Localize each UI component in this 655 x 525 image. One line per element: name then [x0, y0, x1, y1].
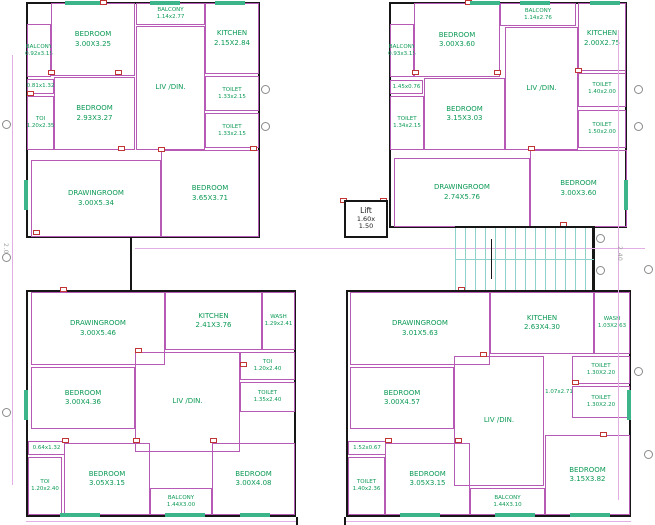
room-bedroom: BEDROOM3.05X3.15 — [64, 443, 150, 515]
room-dims-label: 3.00X3.60 — [561, 189, 597, 198]
room-dims-label: 3.65X3.71 — [192, 194, 228, 203]
room-dims-label: 1.40x2.36 — [353, 486, 381, 493]
stair-rail — [491, 239, 492, 279]
room-toilet: TOILET1.30X2.20 — [572, 386, 630, 418]
window-marker-icon — [24, 180, 28, 210]
window-marker-icon — [520, 1, 550, 5]
room-dims-label: 3.00X3.60 — [439, 40, 475, 49]
room-name-label: KITCHEN — [198, 312, 228, 321]
room-name-label: DRAWINGROOM — [434, 183, 490, 192]
door-marker-icon — [158, 147, 165, 152]
room-bedroom: BEDROOM3.15X3.03 — [424, 78, 505, 150]
grid-bubble-icon — [2, 253, 11, 262]
door-marker-icon — [62, 438, 69, 443]
room-dims-label: 1.44X3.00 — [167, 502, 195, 509]
room-dims-label: 1.50x2.00 — [588, 129, 616, 136]
staircase — [455, 226, 594, 292]
wall-segment — [296, 517, 298, 525]
dimension-line — [346, 521, 631, 522]
door-marker-icon — [48, 70, 55, 75]
door-marker-icon — [528, 146, 535, 151]
room-bedroom: BEDROOM3.00X3.25 — [51, 3, 135, 76]
room-name-label: BEDROOM — [384, 389, 421, 398]
room-toilet: TOILET1.35x2.40 — [240, 382, 295, 412]
room-dims-label: 1.52x0.67 — [353, 445, 381, 452]
room-name-label: LIV /DIN. — [484, 416, 514, 425]
grid-bubble-icon — [261, 85, 270, 94]
door-marker-icon — [118, 146, 125, 151]
room-dims-label: 3.05X3.15 — [410, 479, 446, 488]
room-name-label: TOILET — [591, 363, 610, 370]
room-liv-din: LIV /DIN. — [505, 27, 578, 150]
room-toilet: TOILET1.40x2.36 — [348, 457, 385, 515]
window-marker-icon — [240, 513, 270, 517]
window-marker-icon — [624, 180, 628, 210]
window-marker-icon — [60, 513, 100, 517]
door-marker-icon — [250, 146, 257, 151]
room-name-label: BEDROOM — [569, 466, 606, 475]
room-balcony: BALCONY1.14x2.77 — [136, 3, 205, 25]
room-dims-label: 3.05X3.15 — [89, 479, 125, 488]
room-bedroom: BEDROOM3.00X3.60 — [530, 150, 627, 227]
room-name-label: BALCONY — [168, 495, 194, 502]
room-name-label: TOILET — [397, 116, 416, 123]
door-marker-icon — [240, 362, 247, 367]
room-dims-label: 1.33x2.15 — [218, 94, 246, 101]
room-dims-label: 1.20x2.40 — [31, 486, 59, 493]
room-toi: TOI1.20x2.35 — [27, 96, 54, 150]
room-name-label: DRAWINGROOM — [68, 189, 124, 198]
room-toi: TOI1.20x2.40 — [240, 352, 295, 380]
room-toilet: TOILET1.34x2.15 — [390, 96, 424, 150]
floorplan-canvas: BALCONY0.92x3.15BEDROOM3.00X3.25BALCONY1… — [0, 0, 655, 525]
wall-segment — [130, 238, 132, 290]
door-marker-icon — [412, 70, 419, 75]
room-dims-label: 1.30X2.20 — [587, 402, 615, 409]
room-name-label: KITCHEN — [217, 29, 247, 38]
room-dims-label: 1.20x2.40 — [254, 366, 282, 373]
room-name-label: TOI — [40, 479, 49, 486]
room-dims-label: 2.41X3.76 — [196, 321, 232, 330]
room-name-label: BALCONY — [525, 8, 551, 15]
room-name-label: BEDROOM — [439, 31, 476, 40]
room-name-label: KITCHEN — [527, 314, 557, 323]
room-dims-label: 1.34x2.15 — [393, 123, 421, 130]
grid-bubble-icon — [634, 85, 643, 94]
room-dims-label: 3.00X3.25 — [75, 40, 111, 49]
room-name-label: TOILET — [592, 122, 611, 129]
room-dims-label: 0.64x1.32 — [33, 445, 61, 452]
room-bedroom: BEDROOM3.00X4.57 — [350, 367, 454, 429]
room-name-label: BEDROOM — [89, 470, 126, 479]
room-name-label: DRAWINGROOM — [70, 319, 126, 328]
room-dims-label: 3.00X4.08 — [236, 479, 272, 488]
grid-bubble-icon — [596, 234, 605, 243]
room-dims-label: 1.14x2.77 — [157, 14, 185, 21]
door-marker-icon — [100, 0, 107, 5]
door-marker-icon — [572, 380, 579, 385]
room-toilet: TOILET1.33x2.15 — [205, 113, 259, 148]
door-marker-icon — [210, 438, 217, 443]
lift-shaft: Lift 1.60x 1.50 — [344, 200, 388, 238]
room-dims-label: 1.14x2.76 — [524, 15, 552, 22]
room-name-label: TOI — [36, 116, 45, 123]
room-kitchen: KITCHEN2.41X3.76 — [165, 292, 262, 350]
room-drawingroom: DRAWINGROOM2.74X5.76 — [394, 158, 530, 227]
room-name-label: BEDROOM — [446, 105, 483, 114]
room-bedroom: BEDROOM3.00X3.60 — [414, 3, 500, 77]
room-dims-label: 2.74X5.76 — [444, 193, 480, 202]
window-marker-icon — [165, 513, 205, 517]
room-dims-label: 3.15X3.03 — [447, 114, 483, 123]
room-name-label: BEDROOM — [75, 30, 112, 39]
lift-dim-2: 1.50 — [359, 223, 373, 230]
room-name-label: BEDROOM — [560, 179, 597, 188]
dimension-line — [26, 521, 296, 522]
grid-bubble-icon — [644, 265, 653, 274]
window-marker-icon — [65, 1, 100, 5]
room-bedroom: BEDROOM3.65X3.71 — [161, 150, 259, 237]
room-name-label: BEDROOM — [76, 104, 113, 113]
room-balcony: BALCONY1.44X3.00 — [150, 488, 212, 515]
window-marker-icon — [495, 513, 535, 517]
room-bedroom: BEDROOM3.00X4.36 — [31, 367, 135, 429]
grid-bubble-icon — [596, 266, 605, 275]
dimension-line — [12, 55, 13, 485]
room-dims-label: 2.63X4.30 — [524, 323, 560, 332]
room-name-label: BALCONY — [26, 44, 52, 51]
room-wash: WASH1.03X2.63 — [594, 292, 630, 354]
dimension-text: 2.40 — [616, 246, 623, 261]
room-kitchen: KITCHEN2.15X2.84 — [205, 3, 259, 74]
room-name-label: BEDROOM — [235, 470, 272, 479]
room-balcony: BALCONY1.44X3.10 — [470, 488, 545, 515]
window-marker-icon — [24, 390, 28, 420]
room-name-label: TOILET — [591, 395, 610, 402]
door-marker-icon — [27, 91, 34, 96]
door-marker-icon — [575, 68, 582, 73]
grid-bubble-icon — [634, 122, 643, 131]
room-drawingroom: DRAWINGROOM3.01X5.63 — [350, 292, 490, 365]
room-toi: TOI1.20x2.40 — [28, 457, 62, 515]
door-marker-icon — [133, 438, 140, 443]
room-name-label: BEDROOM — [409, 470, 446, 479]
room-name-label: TOILET — [258, 390, 277, 397]
room-balcony: BALCONY0.93x3.15 — [390, 24, 414, 77]
stair-landing-line — [455, 259, 594, 260]
room-passage: 0.64x1.32 — [28, 441, 65, 455]
door-marker-icon — [385, 438, 392, 443]
room-bedroom: BEDROOM3.00X4.08 — [212, 443, 295, 515]
room-dims-label: 3.00X5.46 — [80, 329, 116, 338]
room-dims-label: 1.44X3.10 — [493, 502, 521, 509]
room-name-label: BEDROOM — [65, 389, 102, 398]
room-dims-label: 1.45x0.76 — [393, 84, 421, 91]
window-marker-icon — [400, 513, 440, 517]
room-balcony: BALCONY1.14x2.76 — [500, 3, 576, 26]
door-marker-icon — [33, 230, 40, 235]
room-name-label: BALCONY — [494, 495, 520, 502]
door-marker-icon — [135, 348, 142, 353]
room-dims-label: 2.00X2.75 — [584, 39, 620, 48]
room-bedroom: BEDROOM3.05X3.15 — [385, 443, 470, 515]
room-dims-label: 0.93x3.15 — [388, 51, 416, 58]
room-passage: 1.45x0.76 — [390, 80, 423, 94]
room-dims-label: 2.15X2.84 — [214, 39, 250, 48]
room-name-label: TOILET — [592, 82, 611, 89]
grid-bubble-icon — [644, 450, 653, 459]
room-passage: 1.52x0.67 — [348, 441, 386, 455]
room-name-label: BALCONY — [157, 7, 183, 14]
window-marker-icon — [470, 1, 500, 5]
door-marker-icon — [115, 70, 122, 75]
door-marker-icon — [455, 438, 462, 443]
window-marker-icon — [150, 1, 180, 5]
room-name-label: KITCHEN — [587, 29, 617, 38]
room-dims-label: 1.03X2.63 — [598, 323, 626, 330]
grid-bubble-icon — [2, 408, 11, 417]
room-toilet: TOILET1.33x2.15 — [205, 76, 259, 111]
room-bedroom: BEDROOM2.93X3.27 — [54, 77, 135, 150]
dimension-line — [618, 30, 619, 500]
room-dims-label: 1.29x2.41 — [265, 321, 293, 328]
room-name-label: TOILET — [222, 124, 241, 131]
room-dims-label: 2.93X3.27 — [77, 114, 113, 123]
window-marker-icon — [590, 1, 620, 5]
room-name-label: LIV /DIN. — [155, 83, 185, 92]
room-name-label: DRAWINGROOM — [392, 319, 448, 328]
door-marker-icon — [60, 287, 67, 292]
room-dims-label: 1.30X2.20 — [587, 370, 615, 377]
window-marker-icon — [215, 1, 245, 5]
door-marker-icon — [494, 70, 501, 75]
room-dims-label: 0.92x3.15 — [25, 51, 53, 58]
room-name-label: WASH — [270, 314, 287, 321]
room-name-label: TOI — [263, 359, 272, 366]
room-liv-din: LIV /DIN. — [135, 352, 240, 452]
room-name-label: TOILET — [222, 87, 241, 94]
room-name-label: TOILET — [357, 479, 376, 486]
room-dims-label: 1.20x2.35 — [27, 123, 55, 130]
room-dims-label: 0.81x1.32 — [27, 83, 55, 90]
room-name-label: LIV /DIN. — [526, 84, 556, 93]
room-drawingroom: DRAWINGROOM3.00X5.34 — [31, 160, 161, 237]
room-dims-label: 3.15X3.82 — [570, 475, 606, 484]
room-dims-label: 1.40x2.00 — [588, 89, 616, 96]
door-marker-icon — [600, 432, 607, 437]
door-marker-icon — [480, 352, 487, 357]
room-dims-label: 3.00X5.34 — [78, 199, 114, 208]
room-dims-label: 3.00X4.57 — [384, 398, 420, 407]
room-name-label: BALCONY — [389, 44, 415, 51]
room-name-label: LIV /DIN. — [172, 397, 202, 406]
room-dims-label: 1.35x2.40 — [254, 397, 282, 404]
room-name-label: BEDROOM — [192, 184, 229, 193]
room-wash: WASH1.29x2.41 — [262, 292, 295, 350]
room-dims-label: 1.07x2.71 — [545, 389, 573, 396]
room-dims-label: 1.33x2.15 — [218, 131, 246, 138]
room-dims-label: 3.01X5.63 — [402, 329, 438, 338]
window-marker-icon — [570, 513, 610, 517]
grid-bubble-icon — [2, 120, 11, 129]
room-liv-din: LIV /DIN. — [136, 26, 205, 150]
grid-bubble-icon — [261, 122, 270, 131]
grid-bubble-icon — [634, 367, 643, 376]
room-kitchen: KITCHEN2.63X4.30 — [490, 292, 594, 354]
room-toilet: TOILET1.30X2.20 — [572, 356, 630, 384]
window-marker-icon — [627, 390, 631, 420]
room-dims-label: 3.00X4.36 — [65, 398, 101, 407]
